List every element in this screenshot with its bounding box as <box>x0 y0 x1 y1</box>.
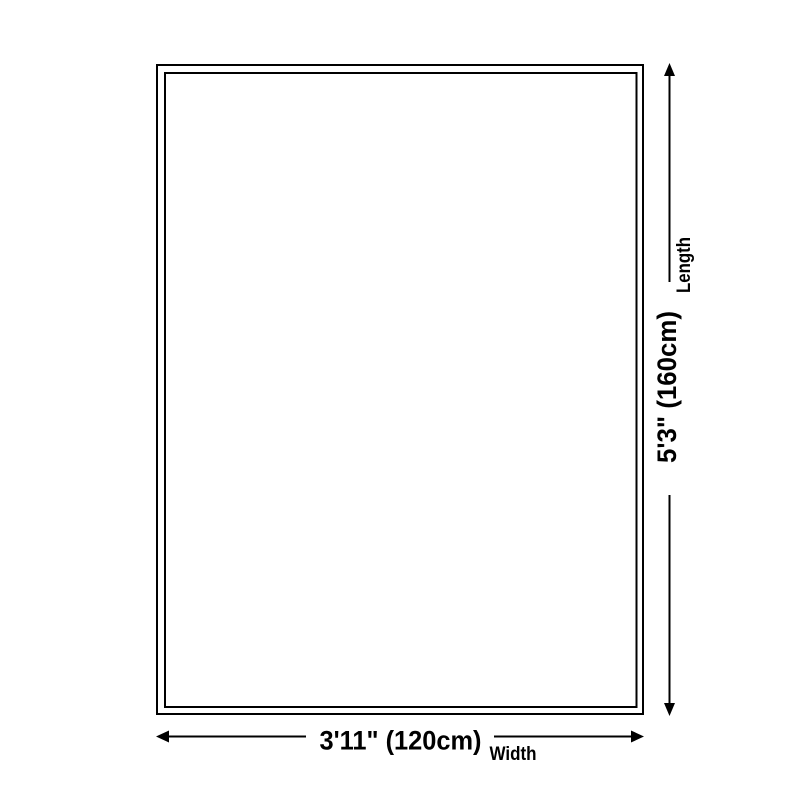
svg-text:Width: Width <box>490 743 537 765</box>
svg-text:Length: Length <box>673 237 695 293</box>
svg-text:5'3" (160cm): 5'3" (160cm) <box>652 311 682 463</box>
svg-text:3'11" (120cm): 3'11" (120cm) <box>320 726 482 756</box>
